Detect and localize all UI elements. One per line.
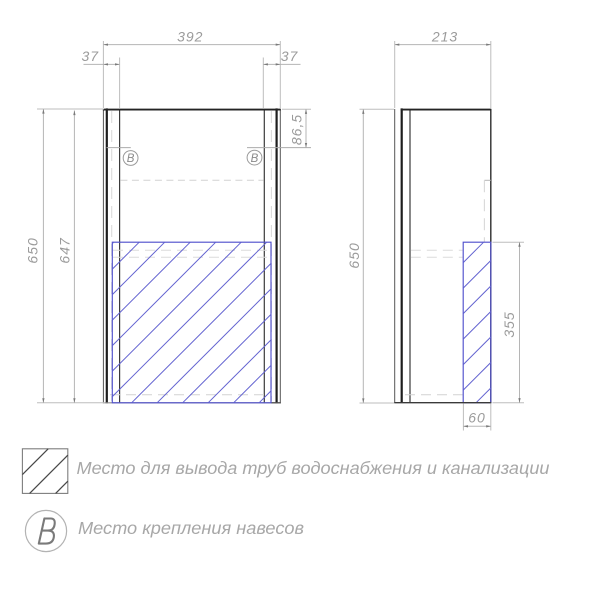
svg-text:Место для вывода труб водоснаб: Место для вывода труб водоснабжения и ка…	[77, 458, 550, 478]
svg-text:37: 37	[82, 48, 100, 64]
svg-text:Место крепления навесов: Место крепления навесов	[78, 518, 304, 538]
svg-text:213: 213	[431, 28, 458, 44]
svg-text:37: 37	[281, 48, 299, 64]
svg-text:650: 650	[24, 237, 40, 263]
svg-text:86,5: 86,5	[288, 114, 304, 145]
svg-text:B: B	[127, 153, 135, 165]
svg-text:650: 650	[346, 242, 362, 268]
svg-text:647: 647	[56, 237, 72, 264]
svg-text:355: 355	[501, 311, 517, 337]
svg-text:60: 60	[468, 410, 486, 426]
svg-text:B: B	[251, 153, 259, 165]
svg-text:392: 392	[177, 28, 203, 44]
